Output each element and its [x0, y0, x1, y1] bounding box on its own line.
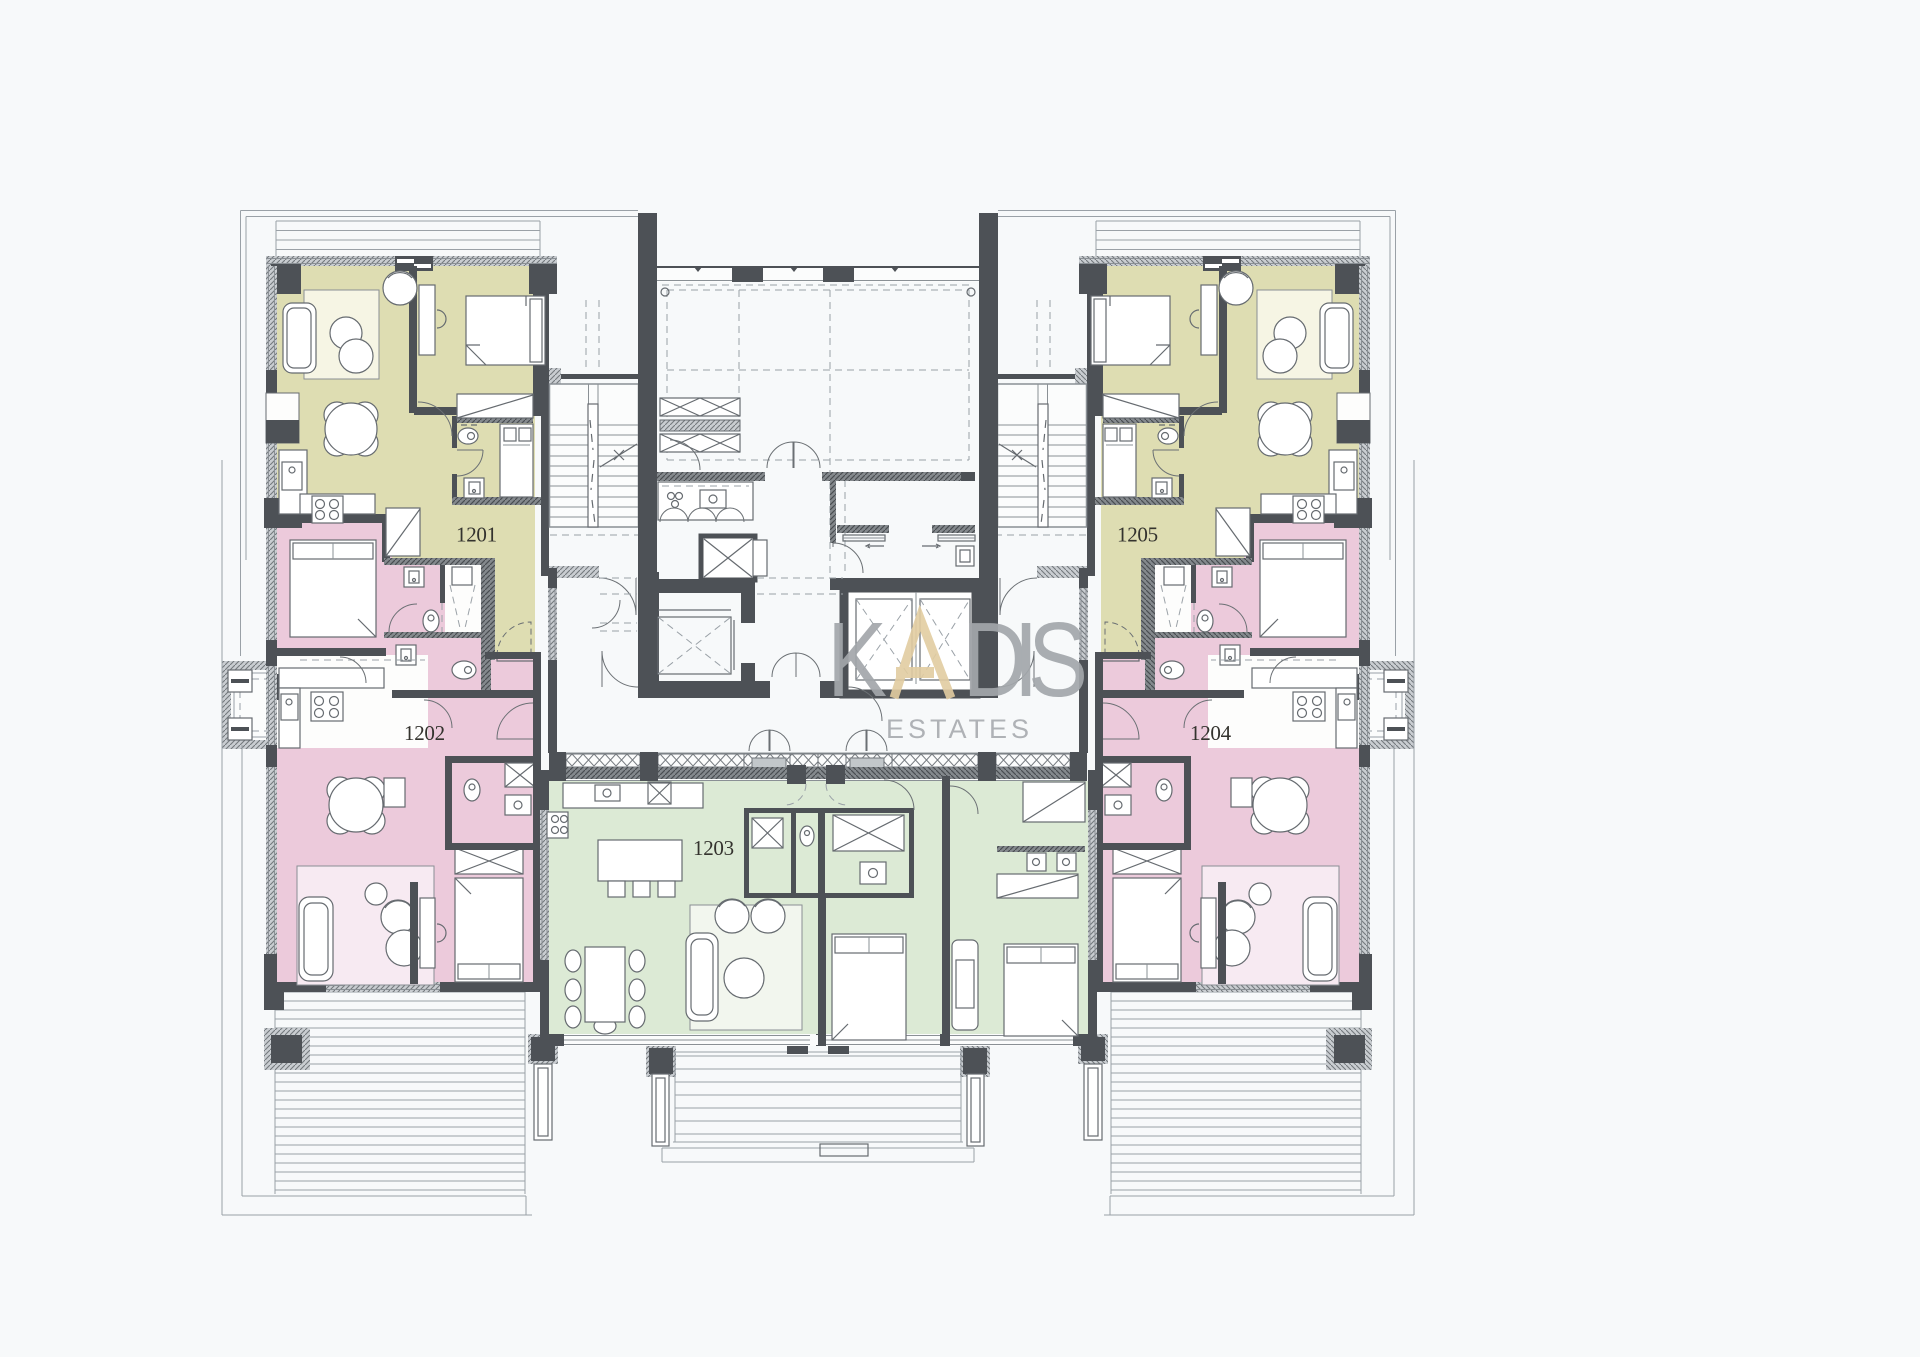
svg-text:1202: 1202 [404, 721, 445, 745]
svg-text:1201: 1201 [456, 523, 497, 547]
svg-text:1204: 1204 [1190, 721, 1232, 745]
svg-text:1205: 1205 [1117, 523, 1158, 547]
svg-text:S: S [1028, 600, 1088, 719]
svg-text:ESTATES: ESTATES [886, 714, 1033, 744]
svg-text:1203: 1203 [693, 836, 734, 860]
svg-text:K: K [827, 600, 887, 719]
